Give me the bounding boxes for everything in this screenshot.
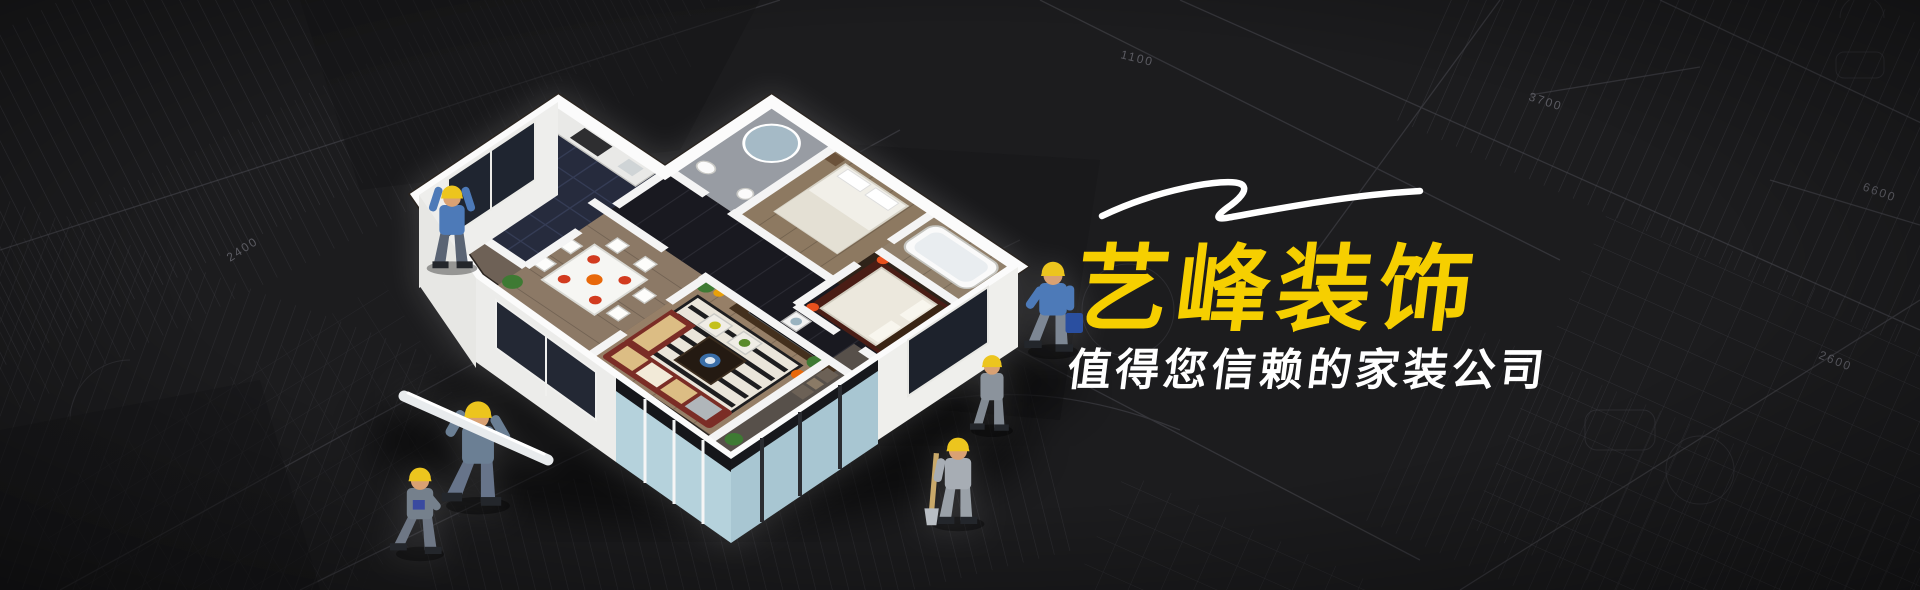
hero-banner[interactable]: 3700 6600 2600 1100 2400 — [0, 0, 1920, 590]
page-subtitle: 值得您信赖的家装公司 — [1065, 349, 1628, 393]
banner-text-block: 艺峰装饰 值得您信赖的家装公司 — [1063, 243, 1641, 393]
swoosh-stroke-icon — [1094, 152, 1430, 230]
worker-walking-bottom-left — [390, 468, 444, 562]
page-title: 艺峰装饰 — [1070, 243, 1642, 337]
worker-holding-shovel — [924, 438, 984, 532]
